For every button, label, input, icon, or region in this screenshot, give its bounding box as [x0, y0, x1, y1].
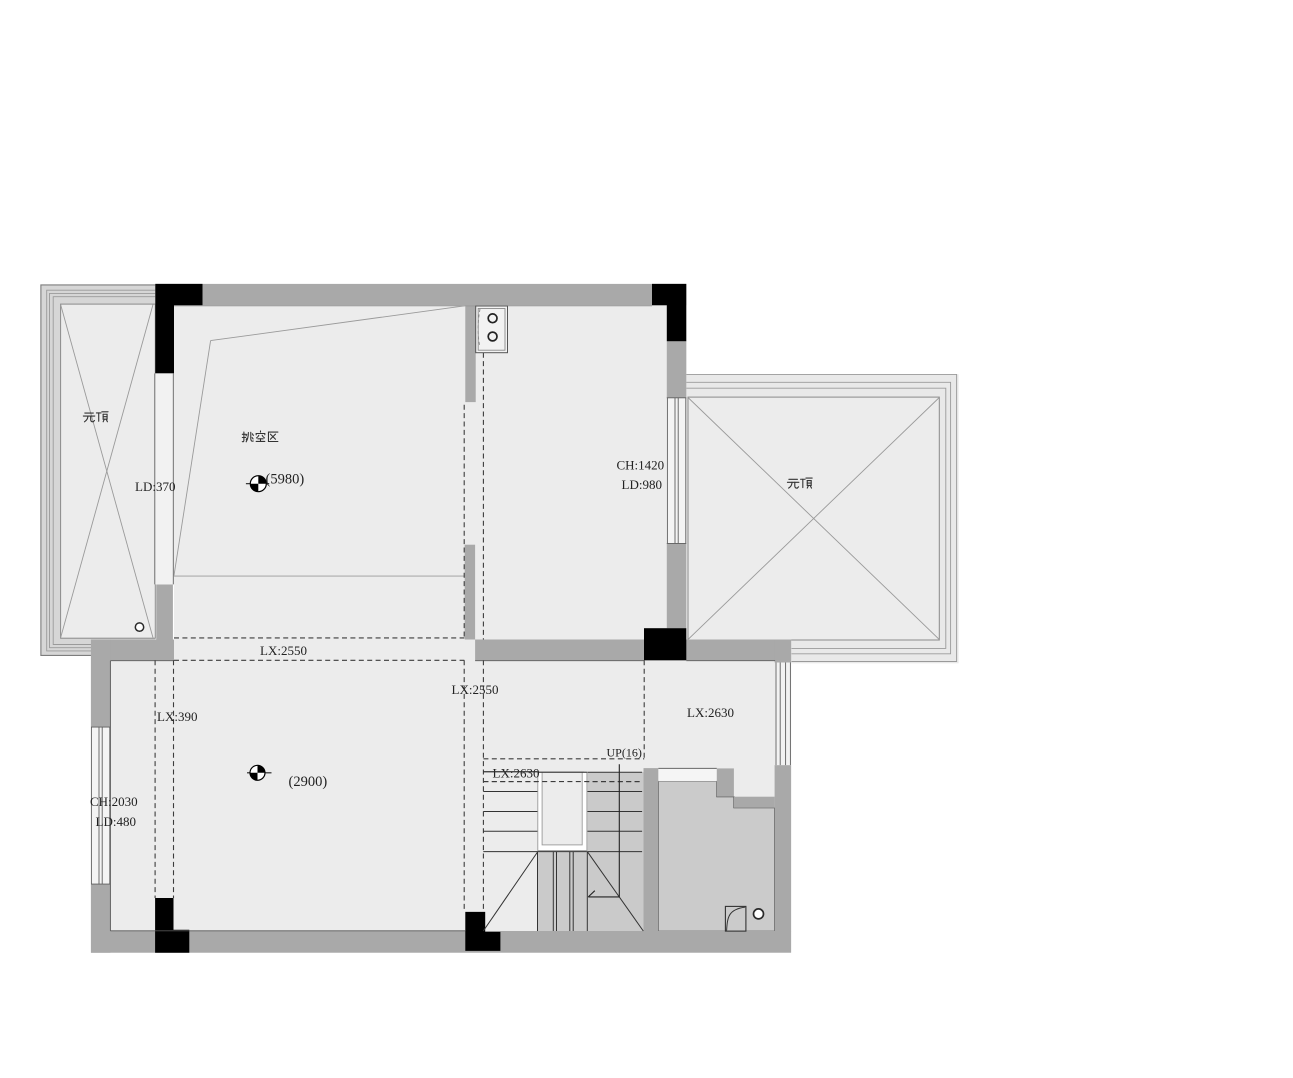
svg-text:LX:2630: LX:2630 — [687, 705, 734, 720]
svg-text:LX:2550: LX:2550 — [452, 682, 499, 697]
svg-text:LD:370: LD:370 — [135, 479, 175, 494]
svg-text:(2900): (2900) — [289, 774, 328, 790]
svg-text:CH:1420: CH:1420 — [617, 458, 665, 473]
svg-text:UP(16): UP(16) — [607, 746, 642, 760]
svg-text:LX:2630: LX:2630 — [493, 766, 540, 781]
svg-text:CH:2030: CH:2030 — [90, 794, 138, 809]
svg-text:LX:390: LX:390 — [157, 709, 197, 724]
svg-text:LX:2550: LX:2550 — [260, 643, 307, 658]
svg-text:(5980): (5980) — [266, 472, 305, 488]
svg-text:LD:480: LD:480 — [96, 814, 136, 829]
svg-text:LD:980: LD:980 — [622, 477, 662, 492]
